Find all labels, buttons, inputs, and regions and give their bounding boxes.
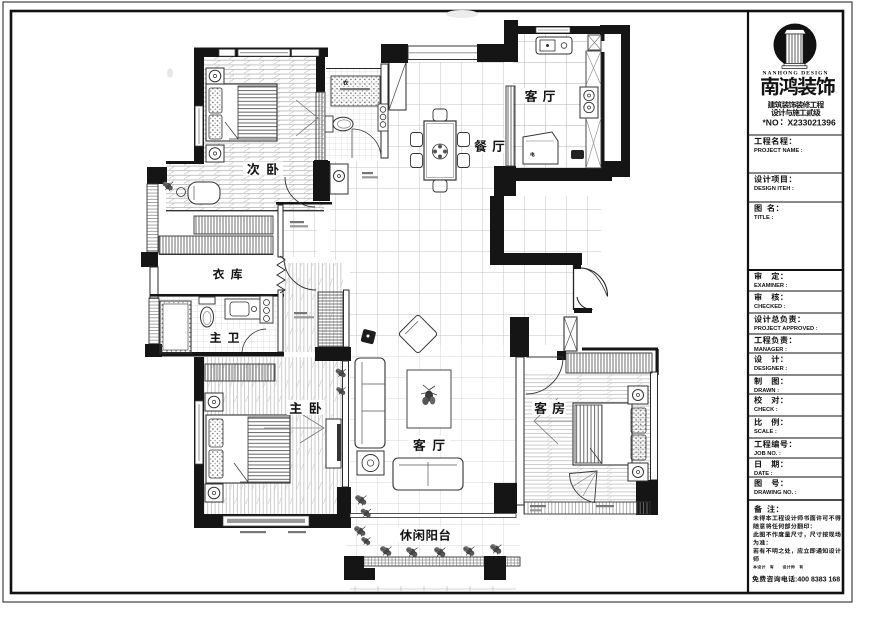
- svg-text:CHECKED :: CHECKED :: [754, 304, 786, 310]
- svg-text:PROJECT NAME :: PROJECT NAME :: [754, 148, 803, 154]
- svg-text:PROJECT APPROVED :: PROJECT APPROVED :: [754, 326, 818, 332]
- svg-text:X233021396: X233021396: [788, 118, 836, 128]
- svg-text:DATE :: DATE :: [754, 471, 773, 477]
- svg-text:SCALE :: SCALE :: [754, 429, 777, 435]
- svg-text:DRAWN :: DRAWN :: [754, 388, 779, 394]
- svg-text:JOB NO. :: JOB NO. :: [754, 451, 781, 457]
- svg-text:NANHONG DESIGN: NANHONG DESIGN: [762, 71, 828, 77]
- svg-text:DESIGNER :: DESIGNER :: [754, 366, 787, 372]
- svg-text:TITLE :: TITLE :: [754, 215, 773, 221]
- svg-text:CHECK :: CHECK :: [754, 407, 778, 413]
- svg-text:DRAWING NO. :: DRAWING NO. :: [754, 490, 797, 496]
- svg-text:*NO: *NO: [763, 118, 779, 128]
- svg-text:MANAGER :: MANAGER :: [754, 347, 787, 353]
- svg-text::400 8383 168: :400 8383 168: [795, 577, 840, 584]
- svg-text:DESIGN ITEH :: DESIGN ITEH :: [754, 186, 794, 192]
- svg-text:EXAMINER :: EXAMINER :: [754, 283, 788, 289]
